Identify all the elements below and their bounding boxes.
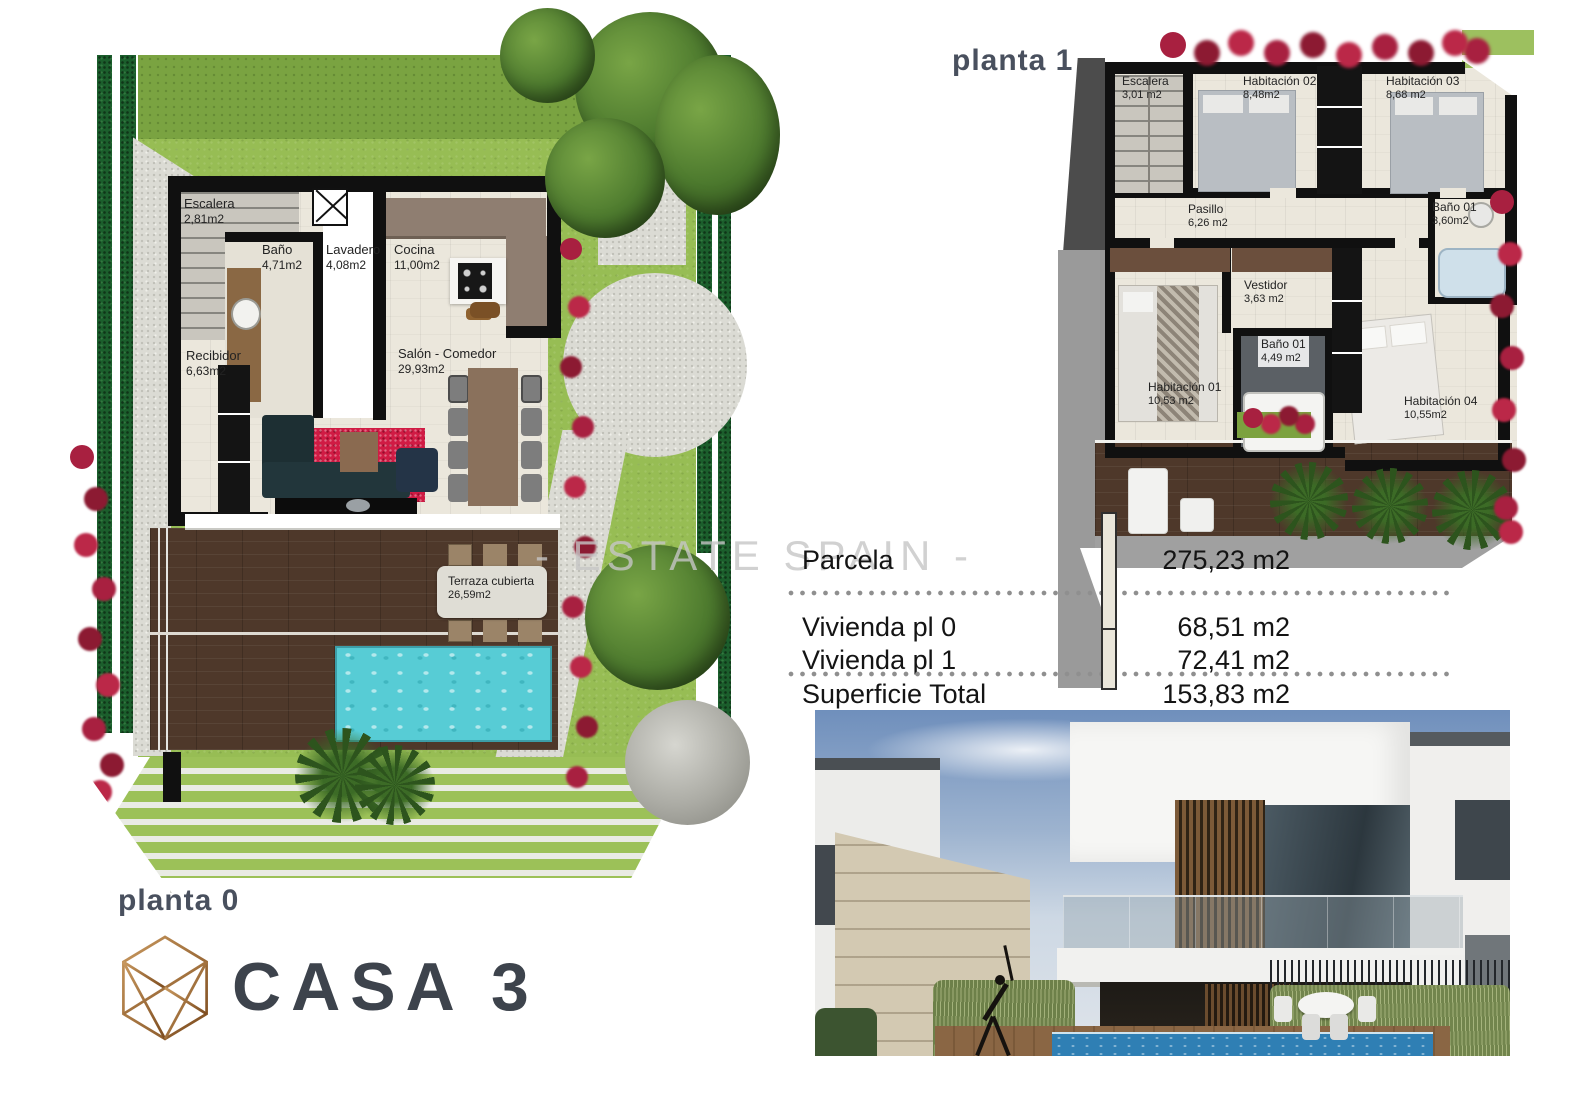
planta1-shadow-wall	[1063, 58, 1105, 253]
room-name: Cocina	[394, 242, 440, 258]
room-name: Escalera	[1122, 74, 1169, 89]
side-table	[1180, 498, 1214, 532]
room-area: 10,53 m2	[1148, 395, 1221, 409]
terrace-chair	[448, 620, 472, 642]
door-gap	[1440, 188, 1466, 198]
bougainvillea	[70, 445, 94, 469]
room-label-pasillo: Pasillo 6,26 m2	[1188, 202, 1228, 231]
room-area: 8,68 m2	[1386, 89, 1459, 103]
deck-seam	[150, 632, 558, 635]
patio-chair	[1274, 996, 1292, 1022]
room-area: 6,26 m2	[1188, 217, 1228, 231]
room-name: Habitación 02	[1243, 74, 1316, 89]
render-pool	[1052, 1032, 1433, 1056]
bed	[1198, 90, 1296, 192]
room-area: 29,93m2	[398, 362, 496, 377]
figure-torso	[982, 983, 1008, 1021]
palm-tree	[1432, 470, 1512, 550]
area-row-total: Superficie Total 153,83 m2	[802, 679, 1292, 711]
wardrobe-shelf-line	[1317, 146, 1362, 148]
room-label-cocina: Cocina 11,00m2	[394, 242, 440, 273]
room-name: Recibidor	[186, 348, 241, 364]
wardrobe-shelf-line	[1332, 300, 1362, 302]
room-label-bano360: Baño 01 3,60m2	[1432, 200, 1477, 229]
room-name: Escalera	[184, 196, 235, 212]
room-area: 3,63 m2	[1244, 293, 1287, 307]
dotted-divider	[788, 671, 1452, 677]
planta0-wall-lavadero	[373, 190, 386, 420]
room-area: 4,71m2	[262, 258, 302, 273]
bougainvillea	[1243, 408, 1263, 428]
wardrobe-strip	[1110, 248, 1230, 272]
room-label-terraza: Terraza cubierta 26,59m2	[448, 574, 534, 603]
dotted-divider	[788, 590, 1452, 596]
room-name: Habitación 03	[1386, 74, 1459, 89]
area-label: Parcela	[802, 545, 894, 575]
room-name: Baño	[262, 242, 302, 258]
room-name: Baño 01	[1261, 337, 1306, 352]
planta0-wall-top	[168, 176, 560, 192]
wardrobe-shelf-line	[1332, 352, 1362, 354]
swimming-pool	[335, 646, 552, 742]
hall-wardrobe	[218, 365, 250, 520]
terrace-edge	[185, 514, 560, 530]
room-area: 3,01 m2	[1122, 89, 1169, 103]
planta0-wall-kitchen	[506, 326, 561, 338]
bedroom-wardrobe	[1317, 66, 1362, 194]
room-name: Lavadero	[326, 242, 380, 258]
patio-table	[1298, 992, 1354, 1018]
door-gap	[1395, 238, 1419, 248]
room-area: 4,49 m2	[1261, 352, 1306, 366]
door-gap	[1270, 188, 1296, 198]
kitchen-counter	[506, 236, 547, 332]
firewood-decor	[470, 302, 500, 318]
planta1-wall-top	[1105, 62, 1465, 74]
room-name: Terraza cubierta	[448, 574, 534, 589]
room-area: 8,48m2	[1243, 89, 1316, 103]
tree	[655, 55, 780, 215]
figure-leg	[975, 1016, 994, 1056]
room-area: 26,59m2	[448, 589, 534, 603]
room-name: Baño 01	[1432, 200, 1477, 215]
room-label-salon: Salón - Comedor 29,93m2	[398, 346, 496, 377]
terrace-chair	[448, 544, 472, 566]
tree	[500, 8, 595, 103]
gravel-patch	[563, 273, 747, 457]
wardrobe-shelf-line	[1317, 106, 1362, 108]
wardrobe-shelf-line	[218, 461, 250, 463]
floorplan-sheet: Terraza cubierta 26,59m2 Escalera 2,81m2…	[0, 0, 1580, 1113]
room-area: 4,08m2	[326, 258, 380, 273]
casa-logo-cube-icon	[113, 925, 217, 1055]
figure-leg	[991, 1016, 1010, 1056]
balcony-glass	[1063, 895, 1463, 955]
planta1-wall-bottom	[1345, 460, 1512, 471]
tree	[545, 118, 665, 238]
center-wardrobe	[1332, 248, 1362, 413]
pillar-divider	[1103, 628, 1115, 630]
room-name: Vestidor	[1244, 278, 1287, 293]
pillow	[1203, 95, 1243, 113]
dining-chair	[448, 375, 469, 403]
dry-tree	[625, 700, 750, 825]
yoga-figure	[965, 945, 1025, 1056]
room-area: 11,00m2	[394, 258, 440, 273]
bathtub-icon	[1438, 248, 1506, 298]
bougainvillea	[560, 238, 582, 260]
pillow	[1123, 292, 1153, 312]
planta0-title: planta 0	[118, 884, 239, 918]
area-label: Vivienda pl 0	[802, 612, 956, 642]
dining-chair	[521, 375, 542, 403]
deck-post	[163, 752, 181, 802]
palm-tree	[1352, 468, 1428, 544]
room-area: 2,81m2	[184, 212, 235, 227]
room-name: Habitación 01	[1148, 380, 1221, 395]
area-value: 275,23 m2	[990, 545, 1290, 576]
room-label-habitacion01: Habitación 01 10,53 m2	[1148, 380, 1221, 409]
room-label-vestidor: Vestidor 3,63 m2	[1244, 278, 1287, 307]
armchair	[396, 448, 438, 492]
planta1-wall-right-lower	[1498, 300, 1510, 470]
area-value: 68,51 m2	[990, 612, 1290, 643]
planta1-title: planta 1	[952, 44, 1073, 78]
kitchen-counter	[386, 198, 546, 239]
room-area: 6,63m2	[186, 364, 241, 379]
room-label-bano0: Baño 4,71m2	[262, 242, 302, 273]
room-label-recibidor: Recibidor 6,63m2	[186, 348, 241, 379]
section-pillar	[1101, 512, 1117, 690]
planta0-wall-bath	[313, 240, 323, 418]
shaft-box	[312, 188, 348, 226]
room-label-bano449: Baño 01 4,49 m2	[1258, 336, 1309, 367]
door-gap	[1150, 238, 1174, 248]
tv-icon	[346, 499, 370, 512]
wardrobe-strip	[1232, 248, 1332, 272]
figure-arm	[1003, 945, 1013, 981]
coffee-table	[340, 432, 378, 472]
hedge-strip	[97, 55, 112, 733]
palm-tree	[1270, 462, 1348, 540]
planta0-wall-left	[168, 176, 181, 526]
wardrobe-shelf-line	[218, 413, 250, 415]
room-name: Habitación 04	[1404, 394, 1477, 409]
render-photo	[815, 710, 1510, 1056]
lounge-chair	[1128, 468, 1168, 534]
stove-icon	[458, 263, 492, 299]
deck-seam	[158, 528, 160, 750]
dining-table	[468, 368, 518, 506]
room-label-habitacion04: Habitación 04 10,55m2	[1404, 394, 1477, 423]
neighbor-roof-edge	[815, 758, 940, 770]
pillow	[1389, 321, 1427, 347]
room-area: 3,60m2	[1432, 215, 1477, 229]
dining-set	[1270, 982, 1380, 1032]
sink-icon	[231, 298, 261, 330]
bougainvillea	[1490, 190, 1514, 214]
room-label-lavadero: Lavadero 4,08m2	[326, 242, 380, 273]
room-area: 10,55m2	[1404, 409, 1477, 423]
sofa	[262, 462, 410, 498]
room-label-escalera1: Escalera 3,01 m2	[1122, 74, 1169, 103]
area-value: 153,83 m2	[990, 679, 1290, 710]
area-label: Superficie Total	[802, 679, 986, 709]
planta0-wall-bath-top	[225, 232, 323, 242]
bush	[815, 1008, 877, 1056]
area-row-parcela: Parcela 275,23 m2	[802, 545, 1292, 577]
room-name: Salón - Comedor	[398, 346, 496, 362]
area-row-vivienda0: Vivienda pl 0 68,51 m2	[802, 612, 1292, 644]
bed	[1390, 92, 1484, 194]
room-label-habitacion02: Habitación 02 8,48m2	[1243, 74, 1316, 103]
planta1-wall-escalera	[1183, 62, 1193, 198]
deck-seam	[166, 528, 168, 750]
room-name: Pasillo	[1188, 202, 1228, 217]
neighbor-window	[1455, 800, 1510, 880]
palm-tree	[355, 745, 435, 825]
room-label-habitacion03: Habitación 03 8,68 m2	[1386, 74, 1459, 103]
room-label-escalera0: Escalera 2,81m2	[184, 196, 235, 227]
bougainvillea	[1160, 32, 1186, 58]
casa-title: CASA 3	[232, 948, 539, 1026]
